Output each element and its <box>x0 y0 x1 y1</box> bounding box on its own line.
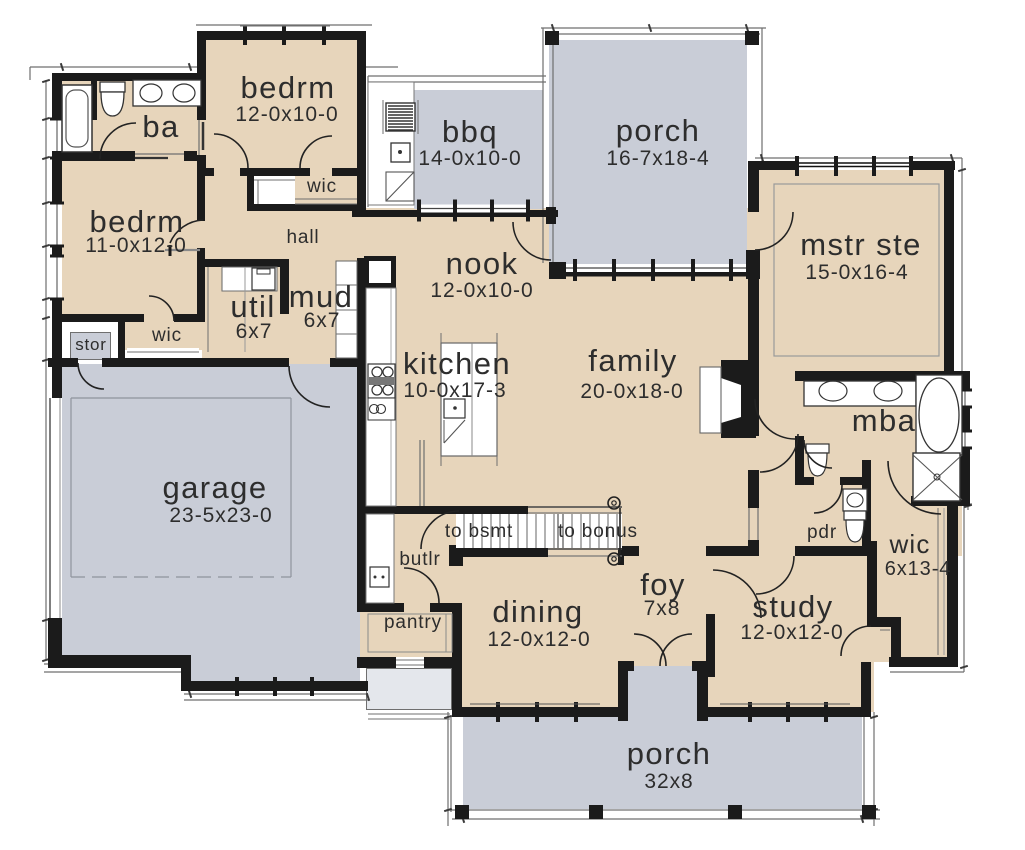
svg-text:to bsmt: to bsmt <box>445 521 513 542</box>
svg-text:wic: wic <box>151 325 182 346</box>
svg-text:util: util <box>230 289 275 324</box>
svg-text:ba: ba <box>142 109 179 144</box>
svg-text:32x8: 32x8 <box>644 770 693 793</box>
svg-text:study: study <box>752 589 833 624</box>
svg-text:12-0x12-0: 12-0x12-0 <box>487 628 590 651</box>
svg-text:pdr: pdr <box>807 522 837 543</box>
svg-text:wic: wic <box>306 176 337 197</box>
svg-text:dining: dining <box>492 594 583 629</box>
svg-text:to bonus: to bonus <box>558 521 638 542</box>
svg-text:hall: hall <box>286 227 319 248</box>
svg-text:stor: stor <box>75 335 106 354</box>
svg-text:12-0x10-0: 12-0x10-0 <box>430 279 533 302</box>
svg-text:10-0x17-3: 10-0x17-3 <box>403 379 506 402</box>
svg-text:porch: porch <box>627 736 712 771</box>
svg-text:14-0x10-0: 14-0x10-0 <box>418 147 521 170</box>
svg-text:garage: garage <box>163 470 268 505</box>
svg-text:family: family <box>588 343 677 378</box>
svg-text:kitchen: kitchen <box>403 346 511 381</box>
svg-text:bbq: bbq <box>442 114 498 149</box>
svg-text:12-0x10-0: 12-0x10-0 <box>235 103 338 126</box>
svg-text:porch: porch <box>616 113 701 148</box>
svg-text:20-0x18-0: 20-0x18-0 <box>580 380 683 403</box>
svg-text:6x13-4: 6x13-4 <box>885 558 952 580</box>
svg-text:7x8: 7x8 <box>644 597 681 620</box>
svg-text:12-0x12-0: 12-0x12-0 <box>740 621 843 644</box>
svg-text:pantry: pantry <box>384 612 442 633</box>
svg-text:23-5x23-0: 23-5x23-0 <box>169 504 272 527</box>
svg-text:butlr: butlr <box>399 549 440 570</box>
svg-text:wic: wic <box>888 529 930 559</box>
svg-text:6x7: 6x7 <box>304 309 341 332</box>
svg-text:11-0x12-0: 11-0x12-0 <box>85 234 187 257</box>
svg-text:bedrm: bedrm <box>241 70 336 105</box>
svg-text:15-0x16-4: 15-0x16-4 <box>805 261 908 284</box>
svg-text:mba: mba <box>852 403 917 438</box>
svg-text:nook: nook <box>446 246 519 281</box>
svg-text:mstr ste: mstr ste <box>800 227 922 262</box>
svg-text:6x7: 6x7 <box>236 320 273 343</box>
svg-text:16-7x18-4: 16-7x18-4 <box>606 147 709 170</box>
